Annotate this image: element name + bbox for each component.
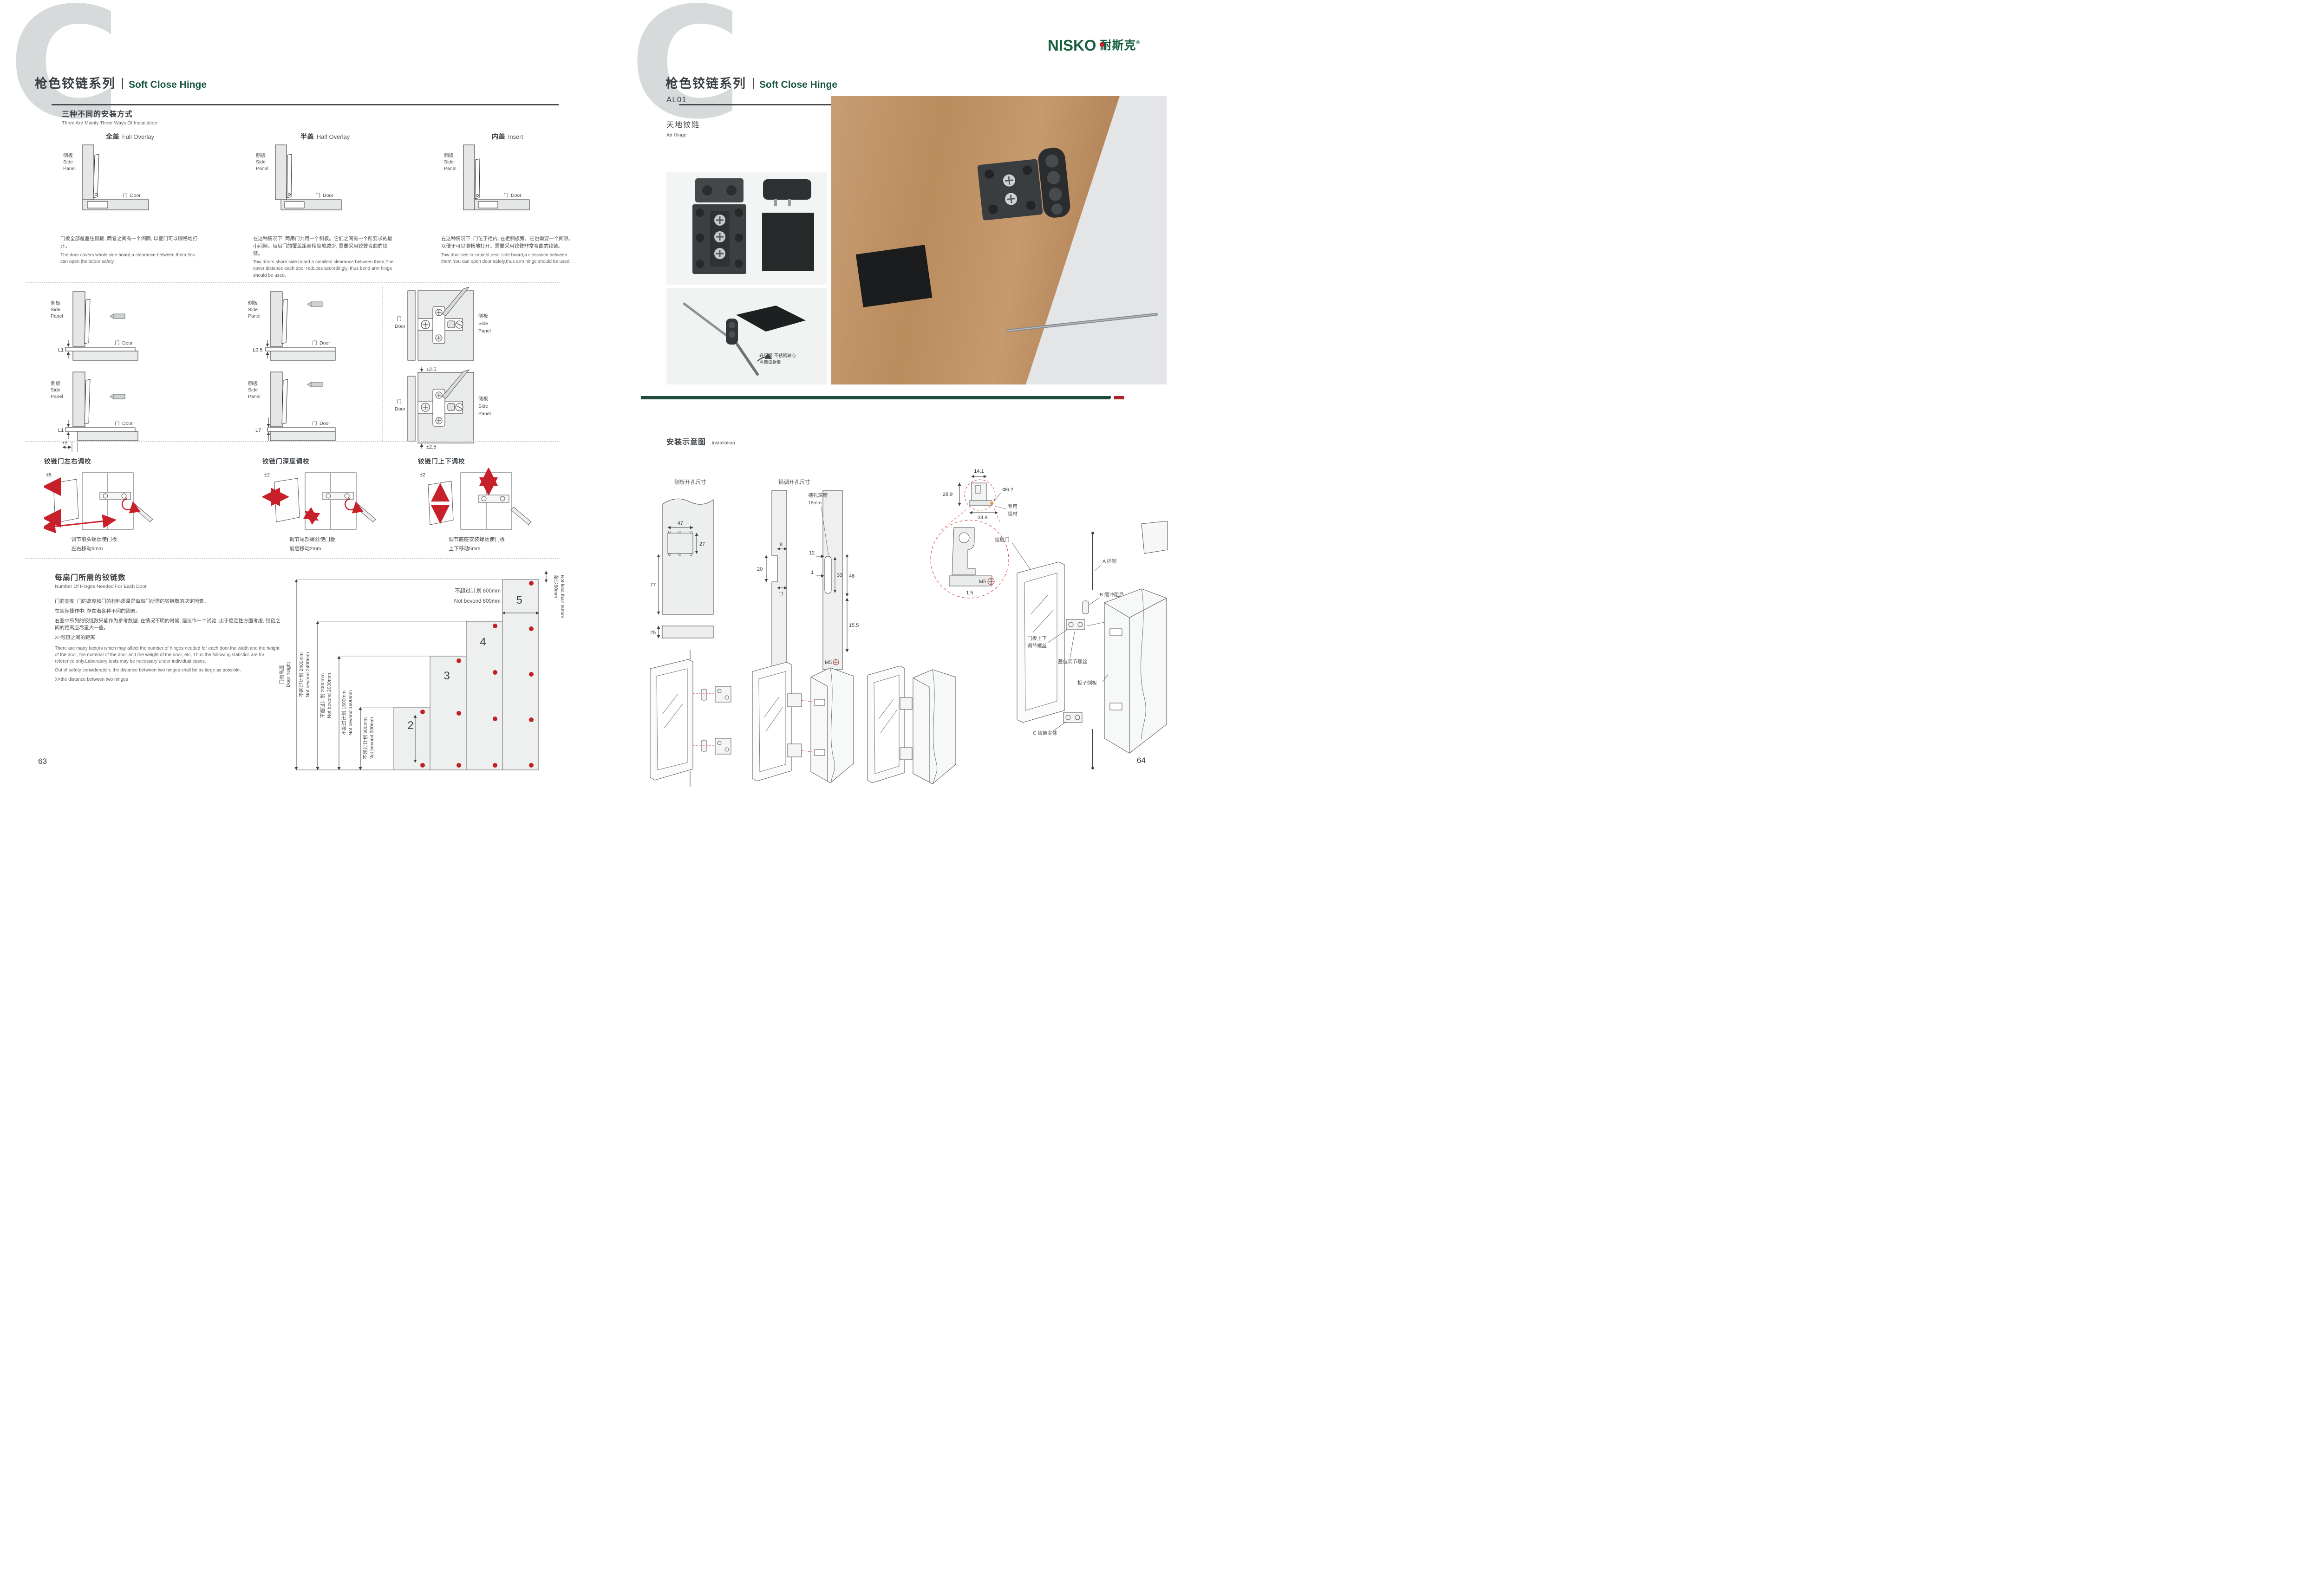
label-cover: 盖位调节螺丝	[1058, 658, 1087, 664]
svg-text:门: 门	[312, 340, 317, 346]
catalog-spread: C 枪色铰链系列Soft Close Hinge 三种不同的安装方式 Three…	[0, 0, 1168, 798]
svg-text:1:5: 1:5	[966, 590, 973, 596]
svg-text:28.9: 28.9	[943, 492, 952, 497]
adjust-range: ±5	[46, 472, 52, 478]
adjust-lr-diagram: ±5	[44, 468, 183, 533]
exploded-view: A 插销 铝框门 B 缓冲阻尼 门板前后 调节螺丝 门板上下 调节螺丝 盖位调节…	[988, 521, 1168, 772]
svg-text:Panel: Panel	[51, 313, 63, 319]
svg-text:Door: Door	[122, 340, 133, 346]
label-cabinet: 柜子侧板	[1077, 680, 1097, 686]
separator-2	[26, 441, 560, 442]
way-head: 半盖Half Overlay	[253, 131, 397, 141]
svg-text:Door: Door	[320, 421, 330, 426]
svg-text:Panel: Panel	[248, 313, 261, 319]
product-code: AL01	[666, 95, 700, 104]
hinge-count-chart: 门的高度 Door height 不超过计划 2400mm Not bevond…	[278, 570, 567, 782]
way-half-overlay: 半盖Half Overlay 侧板 Side Panel 门 Door 在这种情…	[253, 131, 397, 279]
main-hinge-illustration	[831, 96, 1167, 384]
svg-text:Side: Side	[51, 307, 60, 313]
dim-label: L7	[255, 428, 261, 433]
page-header-right: 枪色铰链系列Soft Close Hinge	[665, 73, 837, 91]
chart-ylabel-en: Door height	[286, 662, 291, 687]
svg-text:Φ6.2: Φ6.2	[1002, 487, 1013, 493]
label-body: C 铰链主体	[1033, 730, 1057, 736]
header-divider	[122, 78, 123, 89]
plate-dim-bottom: ±2.5	[426, 444, 436, 449]
product-name-en: Air Hinge	[666, 132, 700, 138]
svg-text:46: 46	[849, 573, 854, 579]
svg-text:Side: Side	[51, 387, 60, 393]
svg-text:77: 77	[650, 582, 656, 588]
hinge-count-section: 每扇门所需的铰链数 Number Of Hinges Needed For Ea…	[55, 571, 280, 685]
svg-text:侧板: 侧板	[248, 380, 258, 386]
logo-red-dot	[1100, 42, 1104, 47]
way-desc-en: The door covers whole side board,a clear…	[60, 252, 200, 265]
ways-section-title: 三种不同的安装方式 Three Are Mainly Three Ways Of…	[62, 108, 157, 126]
svg-text:Door: Door	[511, 193, 522, 198]
svg-text:门: 门	[115, 340, 120, 346]
adjust-caption: 调节底座安装螺丝使门板 上下移动5mm	[449, 535, 562, 554]
svg-text:侧板: 侧板	[478, 313, 489, 319]
svg-text:47: 47	[678, 521, 683, 526]
aluminum-drilling: 8 20 11 槽孔深度 18mm 12 1 33 46 15.5 M5	[753, 487, 861, 672]
svg-text:门: 门	[312, 420, 317, 426]
overlay-dim-diagram-1: L1 门 Door 侧板 Side Panel	[44, 288, 165, 367]
svg-text:专用: 专用	[1008, 503, 1018, 509]
full-overlay-diagram: 侧板 Side Panel 门 Door	[60, 142, 158, 231]
svg-text:25: 25	[650, 630, 656, 636]
svg-text:Side: Side	[248, 307, 258, 313]
svg-text:Panel: Panel	[444, 166, 457, 171]
product-photo-rod: 升级版·不锈钢轴心 可自由拆卸	[666, 288, 827, 384]
hinge-count-title-zh: 每扇门所需的铰链数	[55, 571, 280, 582]
series-title-en: Soft Close Hinge	[129, 79, 207, 90]
dim-label: L0.5	[253, 347, 262, 353]
adjust-depth-diagram: ±2	[262, 468, 402, 533]
svg-text:14.1: 14.1	[974, 469, 984, 474]
svg-text:Panel: Panel	[478, 411, 491, 417]
svg-text:Side: Side	[444, 159, 454, 165]
door-label-zh: 门	[123, 192, 128, 198]
product-name-zh: 天地铰链	[666, 118, 700, 130]
hinge-rod-illustration	[666, 288, 827, 384]
svg-text:15.5: 15.5	[849, 623, 859, 628]
bar-label-2: 2	[407, 719, 413, 732]
series-title-zh: 枪色铰链系列	[35, 77, 116, 91]
rod-annotation: 升级版·不锈钢轴心 可自由拆卸	[759, 353, 796, 366]
svg-text:Side: Side	[248, 387, 258, 393]
svg-text:±2: ±2	[264, 472, 270, 478]
installation-title: 安装示意图 Installation	[666, 436, 735, 447]
hinge-parts-illustration	[666, 172, 827, 285]
svg-text:门: 门	[397, 398, 402, 404]
svg-text:1: 1	[811, 570, 814, 575]
label-pin: A 插销	[1102, 558, 1116, 564]
svg-text:Panel: Panel	[256, 166, 268, 171]
insert-diagram: 侧板 Side Panel 门 Door	[441, 142, 539, 231]
svg-text:门: 门	[315, 192, 320, 198]
side-drill-title: 侧板开孔尺寸	[674, 478, 706, 486]
mounting-plate-diagram-1: 门 Door 侧板 Side Panel	[394, 287, 503, 364]
dim-label: L1	[58, 347, 64, 353]
mounting-plate-diagram-2: ±2.5 ±2.5 门 Door 侧板 Side Panel	[394, 366, 503, 449]
alu-drill-title: 铝调开孔尺寸	[778, 478, 810, 486]
adjust-ud: 铰链门上下调校 ±2 调节底座安装螺丝使门板 上下移动5mm	[418, 456, 562, 554]
adjust-depth: 铰链门深度调校 ±2 调节尾部螺丝使门板 前后移动2mm	[262, 456, 411, 554]
separator-vertical	[382, 287, 383, 441]
svg-text:34.9: 34.9	[978, 515, 987, 521]
svg-text:Door: Door	[395, 324, 405, 329]
svg-text:侧板: 侧板	[248, 300, 258, 306]
svg-text:Not bevond 2400mm: Not bevond 2400mm	[305, 652, 311, 697]
ways-title-en: Three Are Mainly Three Ways Of Installat…	[62, 120, 157, 126]
svg-text:Side: Side	[63, 159, 73, 165]
label-updown-1: 门板上下	[1027, 635, 1047, 641]
nisko-logo: NISKO耐斯克®	[1048, 36, 1140, 54]
svg-text:Door: Door	[323, 193, 333, 198]
accent-bar-red	[1114, 396, 1124, 399]
header-rule-left	[52, 104, 559, 105]
svg-text:不超过计划 1600mm: 不超过计划 1600mm	[341, 691, 347, 736]
side-panel-drilling: 47 27 77 25	[649, 487, 732, 648]
svg-text:Not bevond 900mm: Not bevond 900mm	[369, 717, 375, 760]
bar-label-5: 5	[516, 594, 522, 606]
svg-text:11: 11	[778, 591, 783, 597]
svg-text:Side: Side	[256, 159, 266, 165]
svg-text:门: 门	[115, 420, 120, 426]
label-frame: 铝框门	[995, 537, 1010, 543]
svg-text:侧板: 侧板	[51, 300, 60, 306]
ways-title-zh: 三种不同的安装方式	[62, 108, 157, 119]
chart-min-zh: 至少90mm	[553, 575, 559, 598]
logo-cn: 耐斯克	[1100, 39, 1136, 52]
page-header-left: 枪色铰链系列Soft Close Hinge	[35, 73, 207, 91]
chart-ylabel-zh: 门的高度	[279, 665, 285, 684]
svg-text:Door: Door	[122, 421, 133, 426]
svg-text:Door: Door	[395, 406, 405, 412]
logo-registered-mark: ®	[1136, 40, 1140, 46]
half-overlay-diagram: 侧板 Side Panel 门 Door	[253, 142, 351, 231]
svg-text:8: 8	[780, 542, 783, 547]
svg-text:Panel: Panel	[478, 328, 491, 334]
way-insert: 内盖Insert 侧板 Side Panel 门 Door 在这种情况下, 门位…	[441, 131, 574, 265]
door-label-en: Door	[130, 193, 141, 198]
svg-text:Side: Side	[478, 321, 488, 326]
adjust-caption: 调节前头螺丝使门板 左右移动5mm	[71, 535, 197, 554]
plate-dim-top: ±2.5	[426, 367, 436, 372]
bar-label-3: 3	[444, 670, 450, 682]
svg-text:27: 27	[699, 541, 705, 547]
svg-text:侧板: 侧板	[444, 152, 454, 158]
adjust-caption: 调节尾部螺丝使门板 前后移动2mm	[289, 535, 411, 554]
slot-depth-label-1: 槽孔深度	[808, 492, 828, 498]
panel-label-zh: 侧板	[63, 152, 73, 158]
svg-text:门: 门	[397, 316, 402, 322]
logo-latin: NISKO	[1048, 37, 1096, 54]
svg-text:Side: Side	[478, 404, 488, 409]
page-number-63: 63	[38, 757, 47, 766]
svg-text:20: 20	[757, 567, 763, 572]
adjust-title: 铰链门左右调校	[44, 456, 197, 465]
way-name-en: Full Overlay	[122, 133, 154, 140]
separator-3	[26, 558, 560, 559]
way-full-overlay: 全盖Full Overlay 侧板 Side Panel 门 Door 门板全部…	[60, 131, 200, 265]
svg-text:侧板: 侧板	[478, 396, 489, 402]
way-head: 内盖Insert	[441, 131, 574, 141]
separator-1	[26, 282, 560, 283]
adjust-ud-diagram: ±2	[418, 468, 557, 533]
svg-text:不超过计划 900mm: 不超过计划 900mm	[362, 717, 368, 760]
overlay-dim-diagram-4: L7 门 Door 侧板 Side Panel	[241, 368, 362, 447]
chart-top-zh: 不超过计划 600mm	[455, 587, 501, 594]
way-desc-zh: 门板全部覆盖住侧板, 两者之间有一个间隙, 以便门可以顺畅地打开。	[60, 235, 200, 250]
bar-label-4: 4	[480, 636, 486, 648]
product-block: AL01 天地铰链 Air Hinge	[666, 95, 700, 138]
accent-bar-green	[641, 396, 1111, 399]
way-head: 全盖Full Overlay	[60, 131, 200, 141]
svg-text:±2: ±2	[420, 472, 425, 478]
hinge-count-title-en: Number Of Hinges Needed For Each Door	[55, 584, 280, 589]
svg-text:Not bevond 2000mm: Not bevond 2000mm	[326, 673, 332, 718]
svg-text:Panel: Panel	[51, 394, 63, 399]
overlay-dim-diagram-2: L0.5 门 Door 侧板 Side Panel	[241, 288, 362, 367]
svg-text:不超过计划 2400mm: 不超过计划 2400mm	[298, 652, 304, 697]
chart-min-en: Not less than 90mm	[560, 575, 565, 619]
chart-top-en: Not bevond 600mm	[454, 599, 501, 604]
label-updown-2: 调节螺丝	[1027, 643, 1047, 649]
svg-text:Panel: Panel	[63, 166, 76, 171]
svg-text:门: 门	[503, 192, 509, 198]
product-photo-main	[831, 96, 1167, 384]
dim-label: L1	[58, 428, 64, 433]
svg-text:Not bevond 1600mm: Not bevond 1600mm	[348, 690, 353, 736]
svg-text:33: 33	[837, 573, 842, 578]
adjust-lr: 铰链门左右调校 ±5 调节前头螺丝使门板 左右移动5mm	[44, 456, 197, 554]
page-number-64: 64	[1137, 756, 1146, 765]
svg-text:12: 12	[809, 550, 815, 556]
slot-depth-label-2: 18mm	[808, 500, 822, 506]
svg-text:Panel: Panel	[248, 394, 261, 399]
svg-text:M5: M5	[979, 579, 986, 585]
svg-text:Door: Door	[320, 340, 330, 346]
svg-text:侧板: 侧板	[256, 152, 266, 158]
way-name-zh: 全盖	[106, 133, 119, 141]
svg-text:不超过计划 2000mm: 不超过计划 2000mm	[320, 673, 326, 718]
product-photo-parts	[666, 172, 827, 285]
svg-text:铝材: 铝材	[1008, 511, 1018, 517]
assembly-steps	[646, 649, 966, 788]
svg-text:侧板: 侧板	[51, 380, 60, 386]
